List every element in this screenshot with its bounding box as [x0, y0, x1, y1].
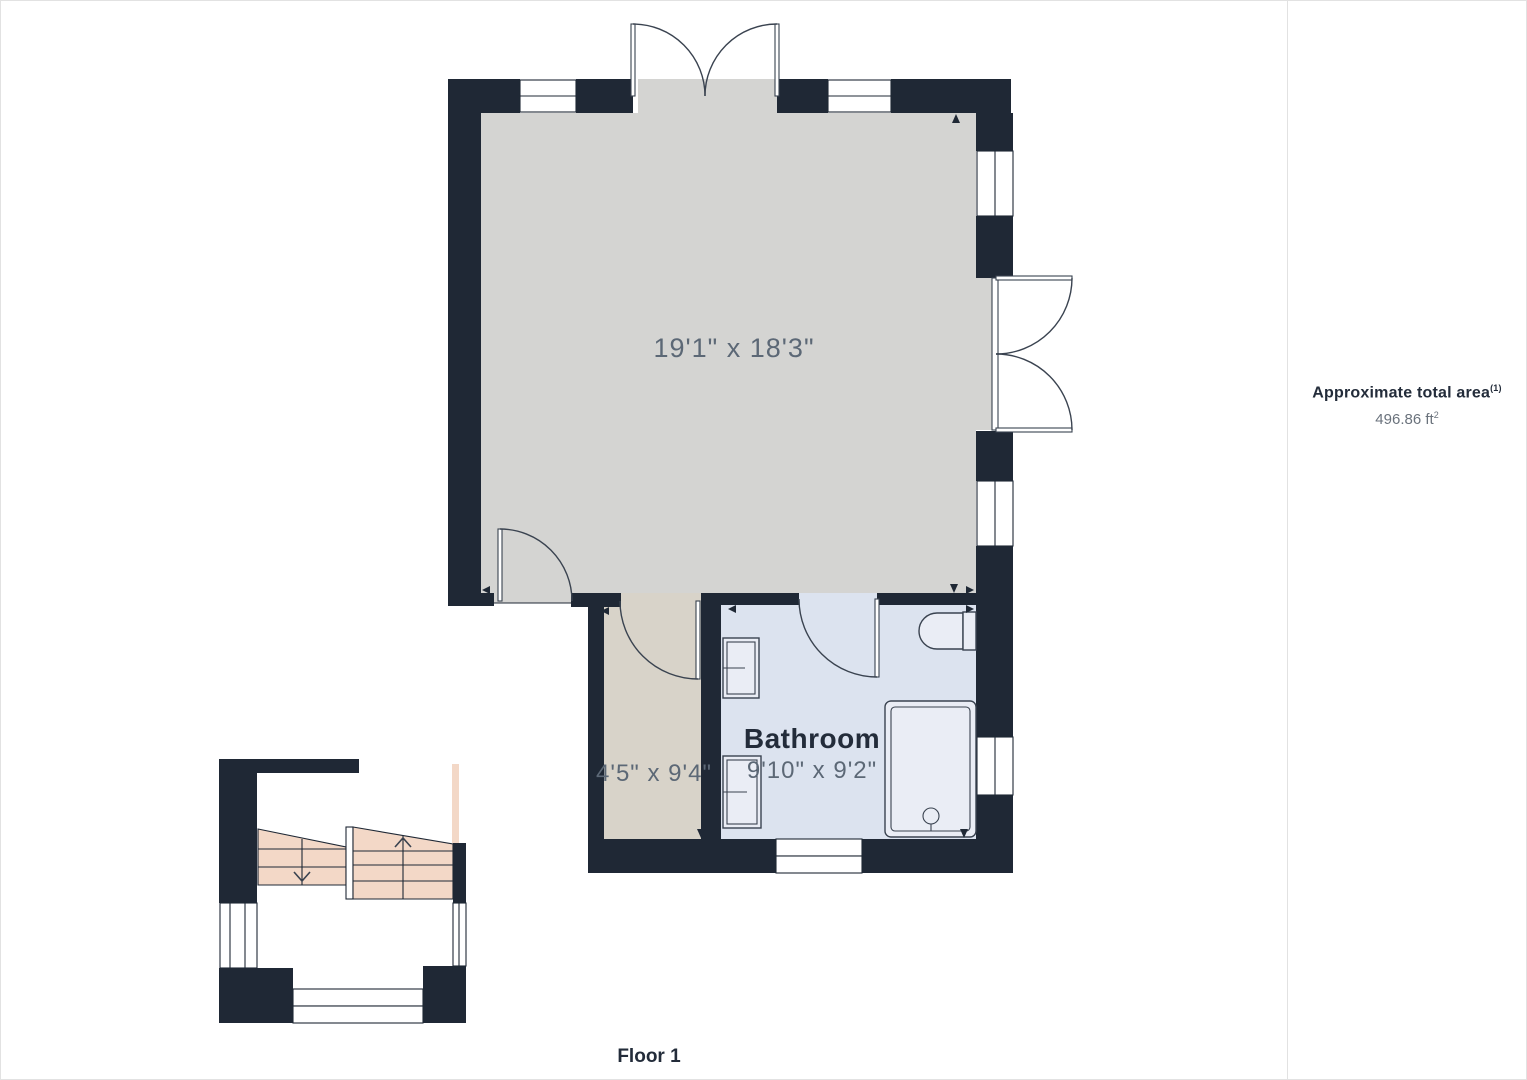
- door-leaf: [696, 601, 700, 679]
- toilet: [919, 612, 976, 650]
- door-leaf: [775, 24, 779, 96]
- total-area-title-text: Approximate total area: [1312, 384, 1490, 401]
- bathroom-dimensions: 9'10" x 9'2": [747, 757, 877, 784]
- door-leaf: [996, 428, 1072, 432]
- vanity-unit: [723, 638, 759, 698]
- window: [453, 903, 466, 966]
- stair-wall-right: [453, 843, 466, 903]
- window: [520, 80, 576, 112]
- door-leaf: [996, 276, 1072, 280]
- wall-segment: [576, 79, 633, 113]
- stair-wall-left: [219, 759, 257, 903]
- wall-segment-right: [976, 431, 1013, 481]
- window: [220, 903, 257, 968]
- total-area-block: Approximate total area(1) 496.86 ft2: [1288, 383, 1526, 428]
- stair-flight-down: [258, 829, 346, 885]
- total-area-title: Approximate total area(1): [1288, 383, 1526, 402]
- stair-wall-bottom-left: [219, 968, 293, 1023]
- french-door-right: [992, 276, 1072, 432]
- bathroom-top-wall: [877, 593, 976, 605]
- floor-label: Floor 1: [617, 1046, 681, 1067]
- wall-segment-left: [448, 79, 481, 606]
- total-area-footnote-marker: (1): [1490, 383, 1502, 393]
- wall-segment: [891, 79, 1011, 113]
- stair-handrail: [452, 764, 459, 843]
- total-area-value-text: 496.86 ft: [1375, 411, 1433, 428]
- window: [828, 80, 891, 112]
- door-leaf: [875, 599, 879, 677]
- door-swing-arc: [996, 278, 1072, 354]
- wall-segment-right: [976, 546, 1013, 737]
- total-area-value: 496.86 ft2: [1288, 410, 1526, 428]
- floorplan-page: 19'1" x 18'3" 4'5" x 9'4" Bathroom 9'10"…: [0, 0, 1527, 1080]
- sw-door-threshold-floor: [494, 593, 571, 603]
- door-leaf: [498, 529, 502, 601]
- entry-door-threshold-floor: [638, 79, 777, 113]
- hallway-dimensions: 4'5" x 9'4": [596, 760, 712, 787]
- total-area-unit-sup: 2: [1434, 410, 1439, 420]
- hallway-left-wall: [588, 607, 604, 873]
- bottom-wall: [862, 839, 1013, 873]
- toilet-tank: [963, 612, 976, 650]
- stair-flight-divider: [346, 827, 353, 899]
- stair-wall-bottom-right: [423, 966, 466, 1023]
- stair-flight-up: [353, 827, 453, 899]
- bathroom-label: Bathroom: [744, 723, 880, 754]
- staircase-block: [219, 759, 466, 1023]
- wall-segment-right: [976, 113, 1013, 151]
- window: [977, 151, 1013, 216]
- entry-steps: [776, 839, 862, 873]
- shower-tray: [885, 701, 976, 837]
- bathroom-top-wall: [721, 593, 799, 605]
- info-sidebar: Approximate total area(1) 496.86 ft2 (1)…: [1287, 1, 1526, 1079]
- toilet-bowl: [919, 613, 963, 649]
- door-leaf: [631, 24, 635, 96]
- window: [977, 737, 1013, 795]
- wall-segment: [777, 79, 828, 113]
- wall-segment-right: [976, 216, 1013, 278]
- living-room-dimensions: 19'1" x 18'3": [653, 333, 814, 363]
- window: [977, 481, 1013, 546]
- wall-nub: [481, 593, 494, 606]
- door-swing-arc: [996, 354, 1072, 430]
- wall-corner: [571, 593, 621, 607]
- hallway-floor: [604, 593, 701, 839]
- bottom-wall: [588, 839, 776, 873]
- entry-steps: [293, 989, 423, 1023]
- hall-bath-divider-wall: [701, 593, 721, 839]
